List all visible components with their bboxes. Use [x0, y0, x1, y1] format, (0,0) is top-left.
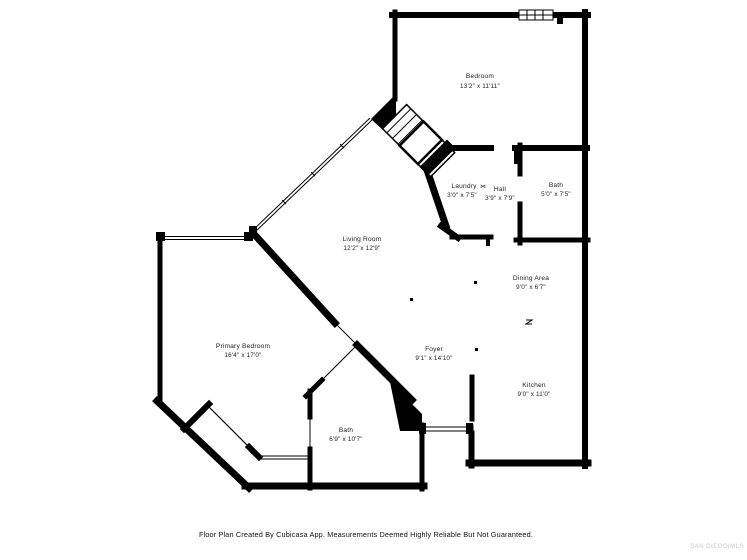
room-label-foyer: Foyer 9'1" x 14'10" [415, 346, 452, 362]
laundry-door-icon: ⋈ [480, 184, 486, 190]
svg-text:Primary Bedroom: Primary Bedroom [216, 343, 271, 350]
svg-text:9'0" x 6'7": 9'0" x 6'7" [516, 284, 546, 291]
room-label-primary-bedroom: Primary Bedroom 16'4" x 17'0" [216, 343, 271, 359]
svg-text:3'0" x 7'5": 3'0" x 7'5" [447, 192, 477, 199]
room-label-kitchen: Kitchen 9'0" x 11'0" [518, 382, 551, 398]
sensor-dots [410, 281, 532, 351]
room-label-bath-upper: Bath 5'0" x 7'5" [541, 182, 571, 198]
svg-text:9'1" x 14'10": 9'1" x 14'10" [415, 355, 452, 362]
svg-text:Hall: Hall [494, 186, 506, 193]
svg-text:Bath: Bath [339, 427, 353, 434]
svg-text:Living Room: Living Room [343, 236, 382, 243]
outlet-icon [526, 320, 532, 324]
room-label-living-room: Living Room 12'2" x 12'9" [343, 236, 382, 252]
floor-plan-page: Bedroom 13'2" x 11'11" Laundry ⋈ 3'0" x … [0, 0, 747, 560]
svg-text:9'0" x 11'0": 9'0" x 11'0" [518, 391, 551, 398]
caption: Floor Plan Created By Cubicasa App. Meas… [199, 530, 533, 539]
room-label-bath-lower: Bath 6'9" x 10'7" [329, 427, 362, 443]
room-label-dining-area: Dining Area 9'0" x 6'7" [513, 275, 549, 291]
svg-text:3'9" x 7'9": 3'9" x 7'9" [485, 195, 515, 202]
svg-text:Laundry: Laundry [451, 183, 477, 190]
watermark: SAN DIEGO|MLS [690, 543, 744, 550]
window-icon-diagonal [249, 118, 372, 234]
svg-text:Bedroom: Bedroom [466, 73, 494, 80]
svg-text:16'4" x 17'0": 16'4" x 17'0" [224, 352, 261, 359]
svg-text:13'2" x 11'11": 13'2" x 11'11" [460, 83, 500, 90]
window-icon-top [519, 10, 553, 20]
entry-door [419, 423, 473, 434]
room-label-hall: Hall 3'9" x 7'9" [485, 186, 515, 202]
svg-text:Bath: Bath [549, 182, 563, 189]
svg-text:Foyer: Foyer [425, 346, 443, 353]
svg-text:12'2" x 12'9": 12'2" x 12'9" [343, 245, 380, 252]
floor-plan: Bedroom 13'2" x 11'11" Laundry ⋈ 3'0" x … [0, 0, 747, 560]
svg-text:Dining Area: Dining Area [513, 275, 549, 282]
svg-text:5'0" x 7'5": 5'0" x 7'5" [541, 191, 571, 198]
stairs-icon [371, 94, 455, 177]
svg-text:6'9" x 10'7": 6'9" x 10'7" [329, 436, 362, 443]
room-label-laundry: Laundry ⋈ 3'0" x 7'5" [447, 183, 486, 199]
svg-text:Kitchen: Kitchen [522, 382, 546, 389]
window-icon-left [156, 232, 253, 241]
room-label-bedroom: Bedroom 13'2" x 11'11" [460, 73, 500, 90]
